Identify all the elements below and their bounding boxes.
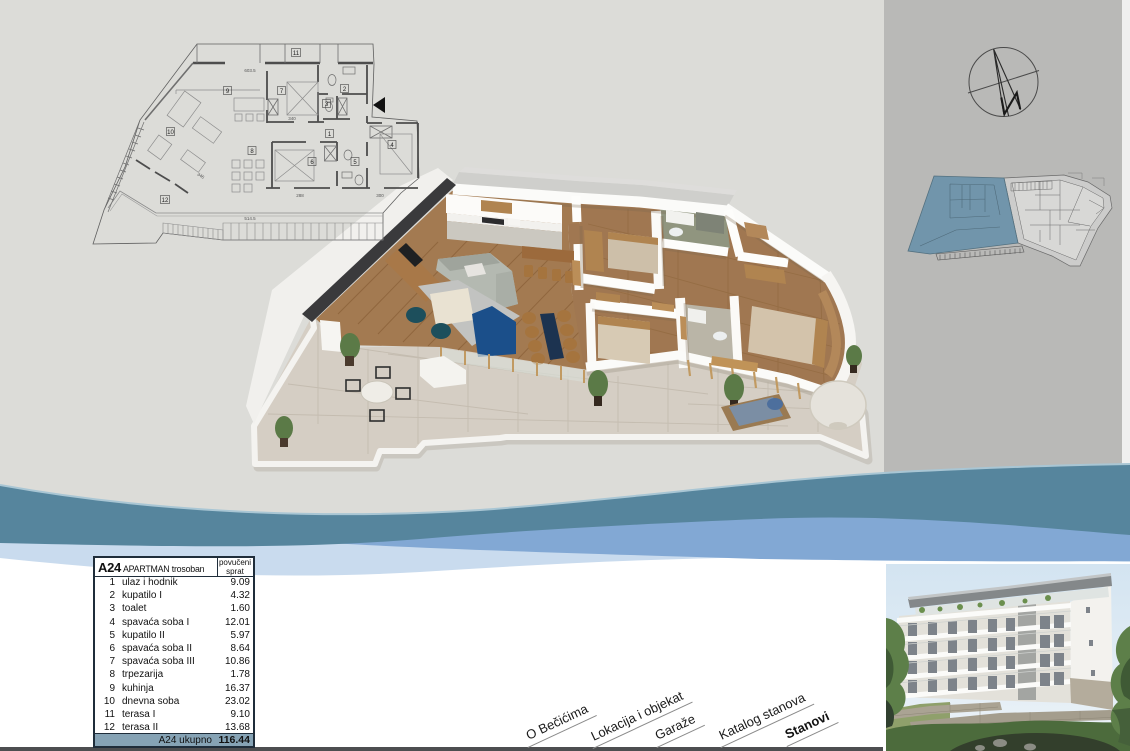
svg-text:8: 8 bbox=[250, 149, 254, 155]
svg-text:1: 1 bbox=[328, 132, 332, 138]
svg-text:340: 340 bbox=[288, 116, 296, 121]
svg-text:12: 12 bbox=[162, 198, 169, 204]
svg-text:5: 5 bbox=[353, 160, 357, 166]
svg-text:7: 7 bbox=[280, 89, 284, 95]
svg-text:2: 2 bbox=[343, 87, 347, 93]
svg-text:346: 346 bbox=[196, 172, 205, 181]
svg-text:4: 4 bbox=[390, 143, 394, 149]
svg-text:11: 11 bbox=[293, 51, 300, 57]
svg-text:288: 288 bbox=[296, 193, 304, 198]
svg-text:603.5: 603.5 bbox=[244, 68, 256, 73]
svg-text:10: 10 bbox=[167, 130, 174, 136]
svg-text:514.5: 514.5 bbox=[244, 216, 256, 221]
svg-text:300: 300 bbox=[376, 193, 384, 198]
